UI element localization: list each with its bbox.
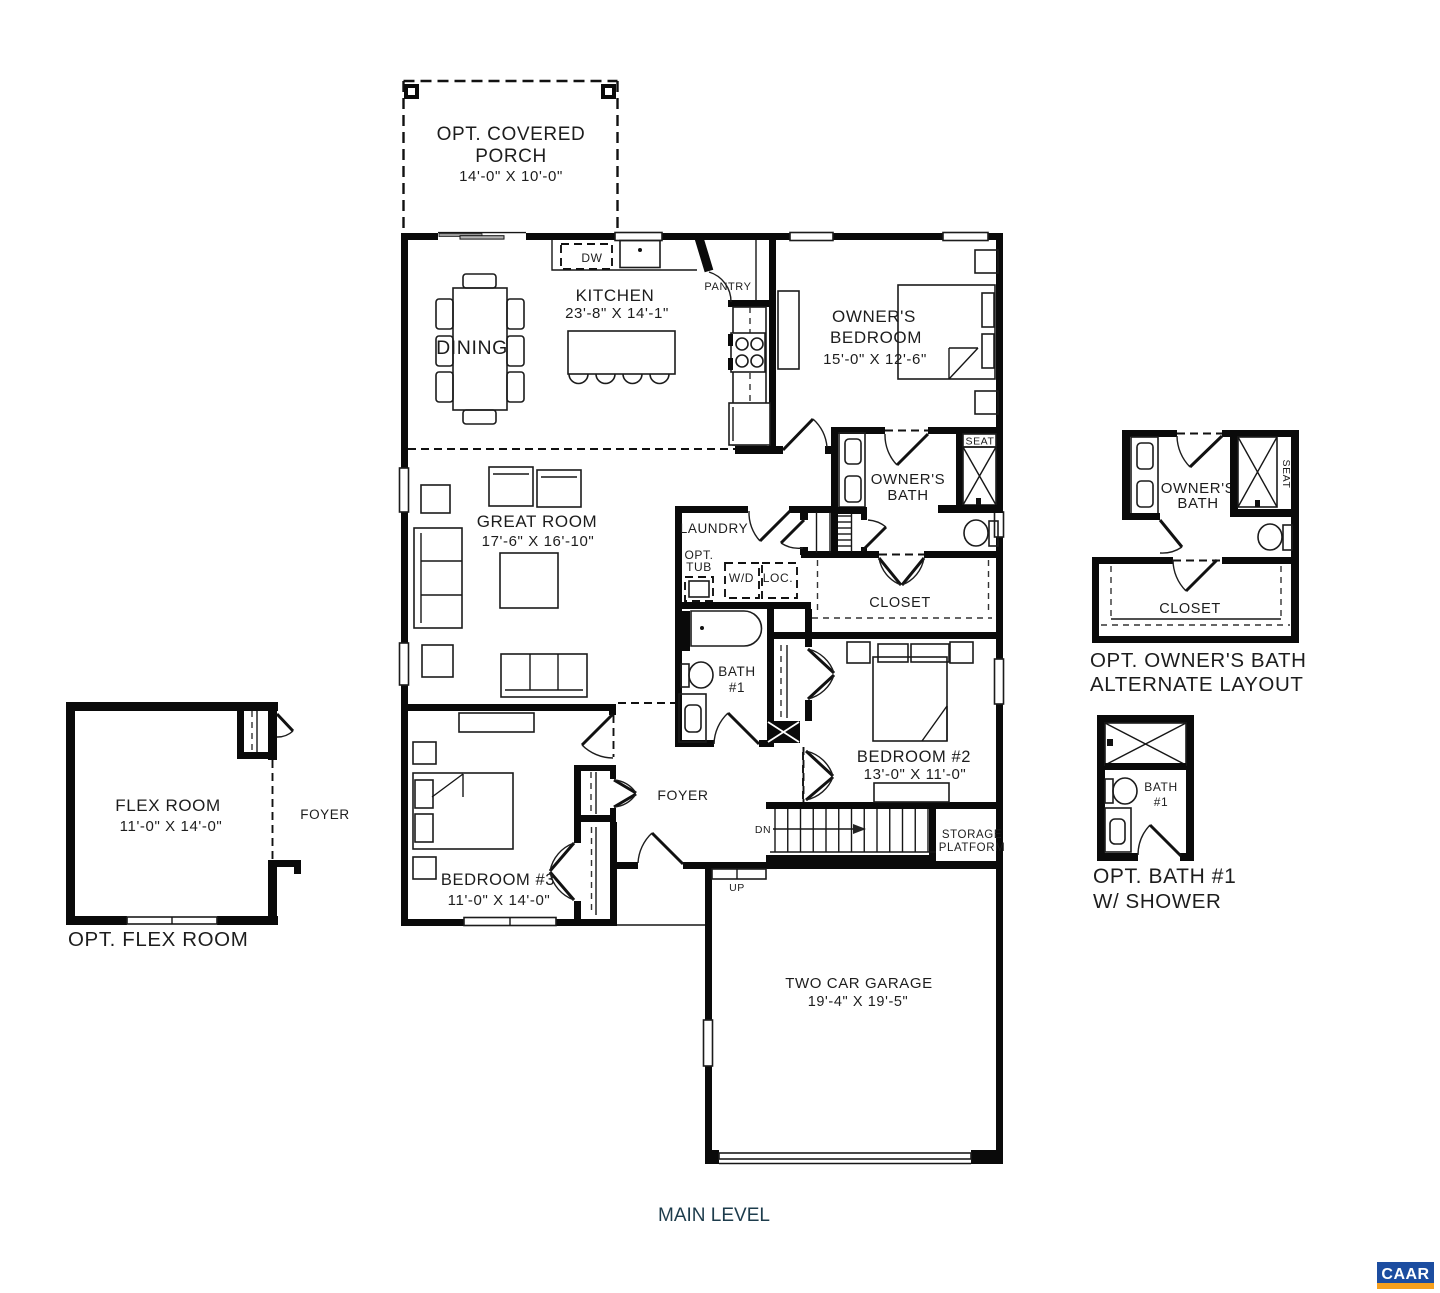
svg-text:UP: UP <box>729 882 745 894</box>
svg-text:FLEX ROOM: FLEX ROOM <box>115 796 221 815</box>
svg-text:#1: #1 <box>1154 795 1169 809</box>
svg-text:CAAR: CAAR <box>1381 1266 1429 1283</box>
svg-text:SEAT: SEAT <box>965 436 994 448</box>
svg-text:CLOSET: CLOSET <box>869 595 931 611</box>
svg-text:OPT. COVERED: OPT. COVERED <box>437 124 586 145</box>
svg-text:BATH: BATH <box>1177 495 1218 512</box>
svg-text:OPT. FLEX ROOM: OPT. FLEX ROOM <box>68 928 248 951</box>
svg-text:W/D: W/D <box>729 571 754 585</box>
svg-text:LAUNDRY: LAUNDRY <box>680 521 748 536</box>
svg-text:OWNER'S: OWNER'S <box>871 471 946 488</box>
svg-text:17'-6" X 16'-10": 17'-6" X 16'-10" <box>482 533 595 550</box>
svg-text:DINING: DINING <box>436 337 508 359</box>
svg-text:13'-0" X 11'-0": 13'-0" X 11'-0" <box>864 766 967 783</box>
svg-text:19'-4" X 19'-5": 19'-4" X 19'-5" <box>808 994 909 1010</box>
svg-text:PLATFORM: PLATFORM <box>939 842 1006 854</box>
svg-text:W/ SHOWER: W/ SHOWER <box>1093 890 1221 913</box>
svg-text:OPT. OWNER'S BATH: OPT. OWNER'S BATH <box>1090 649 1306 672</box>
svg-text:BATH: BATH <box>718 664 755 679</box>
svg-text:CLOSET: CLOSET <box>1159 601 1221 617</box>
svg-text:BATH: BATH <box>1144 780 1178 794</box>
svg-text:TUB: TUB <box>686 560 712 574</box>
svg-text:FOYER: FOYER <box>657 787 708 803</box>
svg-text:PORCH: PORCH <box>475 146 547 167</box>
svg-text:11'-0" X 14'-0": 11'-0" X 14'-0" <box>120 818 223 835</box>
svg-text:14'-0" X 10'-0": 14'-0" X 10'-0" <box>459 168 563 185</box>
svg-text:STORAGE: STORAGE <box>942 829 1002 841</box>
svg-text:15'-0" X 12'-6": 15'-0" X 12'-6" <box>823 351 927 368</box>
svg-text:BATH: BATH <box>887 487 928 504</box>
svg-text:ALTERNATE LAYOUT: ALTERNATE LAYOUT <box>1090 673 1304 696</box>
svg-text:11'-0" X 14'-0": 11'-0" X 14'-0" <box>448 892 551 909</box>
svg-text:BEDROOM #3: BEDROOM #3 <box>441 871 555 889</box>
svg-text:BEDROOM: BEDROOM <box>830 328 922 347</box>
svg-text:TWO CAR GARAGE: TWO CAR GARAGE <box>785 975 933 992</box>
svg-text:OPT. BATH #1: OPT. BATH #1 <box>1093 865 1236 888</box>
svg-text:MAIN LEVEL: MAIN LEVEL <box>658 1205 770 1226</box>
svg-text:FOYER: FOYER <box>300 807 350 822</box>
svg-text:#1: #1 <box>729 680 745 695</box>
svg-text:PANTRY: PANTRY <box>704 281 751 293</box>
svg-text:LOC.: LOC. <box>763 571 793 585</box>
svg-text:GREAT ROOM: GREAT ROOM <box>477 512 598 531</box>
svg-text:DN: DN <box>755 824 771 836</box>
svg-text:23'-8" X 14'-1": 23'-8" X 14'-1" <box>565 305 669 322</box>
svg-text:BEDROOM #2: BEDROOM #2 <box>857 748 971 766</box>
svg-text:SEAT: SEAT <box>1280 459 1292 488</box>
svg-text:OWNER'S: OWNER'S <box>832 307 916 326</box>
svg-text:KITCHEN: KITCHEN <box>576 286 655 305</box>
svg-text:DW: DW <box>581 251 602 265</box>
